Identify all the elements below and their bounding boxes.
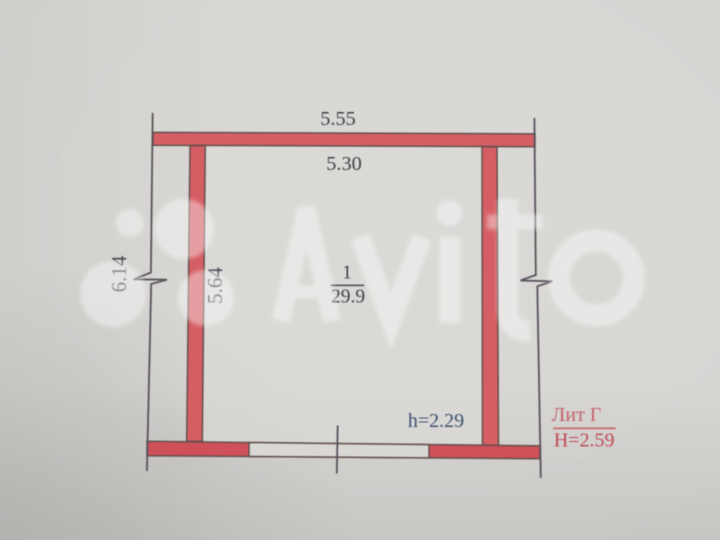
svg-text:5.30: 5.30 (326, 153, 362, 175)
svg-text:5.55: 5.55 (320, 108, 356, 130)
svg-text:h=2.29: h=2.29 (408, 410, 464, 432)
svg-text:H=2.59: H=2.59 (554, 430, 615, 452)
svg-text:Лит Г: Лит Г (552, 404, 602, 426)
svg-text:1: 1 (342, 262, 352, 283)
